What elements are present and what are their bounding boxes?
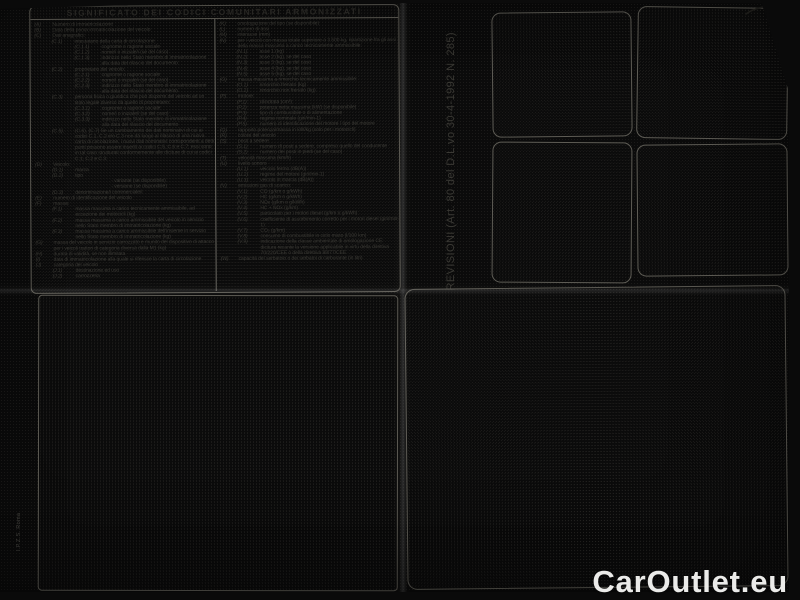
code-line: (V.9)indicazione della classe ambientale… xyxy=(216,238,400,256)
document-sheet: SIGNIFICATO DEI CODICI COMUNITARI ARMONI… xyxy=(0,3,790,592)
photo-of-vehicle-registration-document: { "document": { "title": "SIGNIFICATO DE… xyxy=(0,0,800,600)
code-line: (N)per i veicoli con massa totale superi… xyxy=(215,37,399,49)
code-line: (V.6)coefficiente di assorbimento corret… xyxy=(216,216,400,228)
code-line: (F.3)massa massima a carico ammissibile … xyxy=(31,228,215,240)
blank-field-box-left xyxy=(38,295,399,592)
code-line: (F.2)massa massima a carico ammissibile … xyxy=(31,217,215,229)
code-line: (C.1.3)indirizzo nello Stato membro di i… xyxy=(31,55,215,67)
watermark-caroutlet: CarOutlet.eu xyxy=(592,564,788,600)
codes-column-left: (A)Numero di immatricolazione(B)Data del… xyxy=(30,19,216,292)
revision-stamp-box-1 xyxy=(491,11,632,137)
code-line: (C.3)persona fisica o giuridica che può … xyxy=(31,94,215,106)
revisioni-vertical-label: REVISIONI (Art. 80 del D.L.vo 30-4-1992 … xyxy=(438,31,464,291)
codes-column-right: (K)omologazione del tipo (se disponibile… xyxy=(215,18,400,291)
code-line: (G)massa del veicolo in servizio carrozz… xyxy=(31,239,215,251)
code-line: (C.3.3)indirizzo nello Stato membro di i… xyxy=(31,116,215,128)
revision-stamp-box-4 xyxy=(636,143,788,276)
codes-column-left-text: (A)Numero di immatricolazione(B)Data del… xyxy=(30,19,215,279)
code-line: (W)capacità del serbatoio o dei serbatoi… xyxy=(216,255,400,262)
codes-columns: (A)Numero di immatricolazione(B)Data del… xyxy=(30,18,399,292)
code-line: (C.2.3)indirizzo nello Stato membro di i… xyxy=(31,83,215,95)
printer-imprint: I.P.Z.S. Roma xyxy=(15,513,21,551)
code-line: (C.5),(C.6), (C.7) Se un cambiamento dei… xyxy=(31,127,215,162)
revision-stamp-box-3 xyxy=(636,6,789,140)
codes-legend-panel: SIGNIFICATO DEI CODICI COMUNITARI ARMONI… xyxy=(29,4,401,294)
revision-stamp-box-2 xyxy=(492,142,633,284)
photo-edge-right xyxy=(789,0,800,600)
code-line: (J.2)carrozzeria xyxy=(32,273,216,280)
code-line: (F.1)massa massima a carico tecnicamente… xyxy=(31,206,215,218)
codes-column-right-text: (K)omologazione del tipo (se disponibile… xyxy=(215,18,400,261)
blank-field-box-right xyxy=(404,285,788,590)
